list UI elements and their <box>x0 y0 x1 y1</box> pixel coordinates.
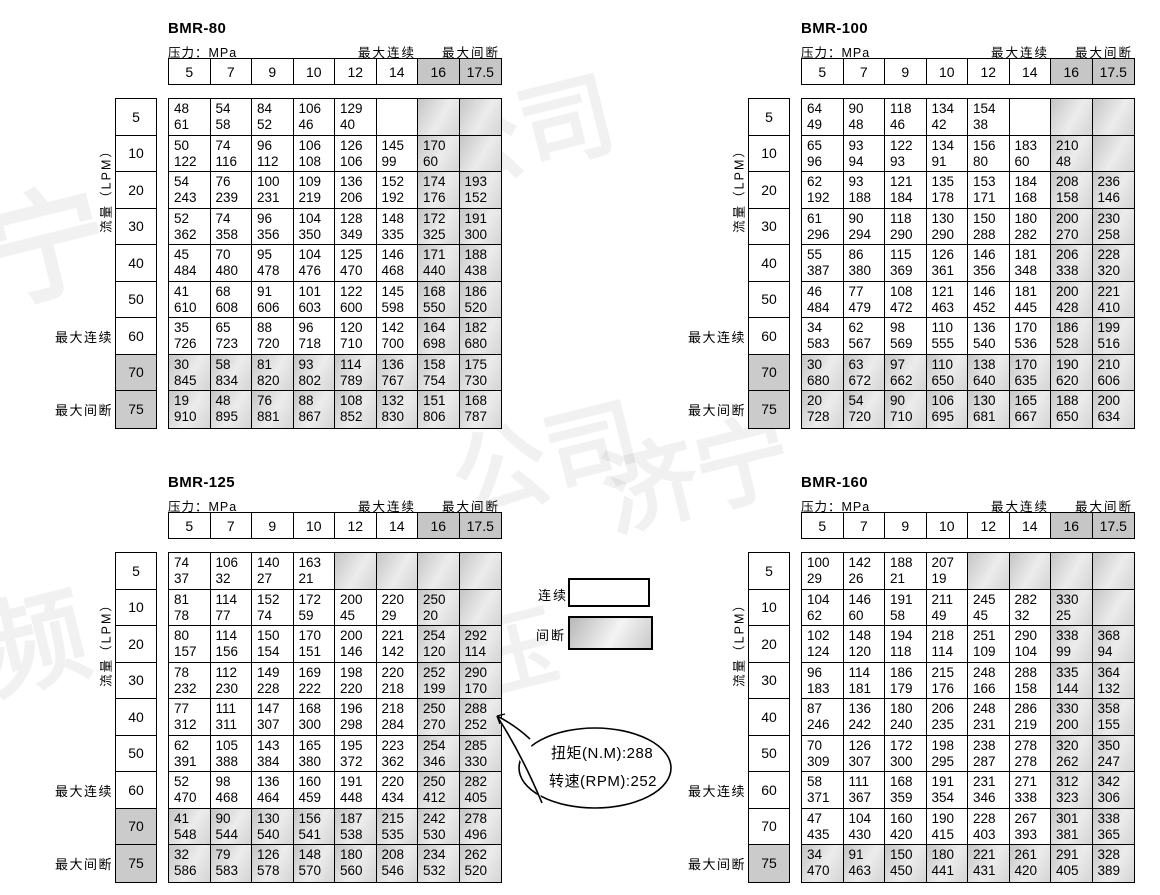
torque-speed-cell: 330200 <box>1051 699 1093 736</box>
torque-value: 126 <box>932 247 968 263</box>
flow-row-label: 50 <box>749 282 789 319</box>
torque-speed-cell: 104476 <box>294 245 336 282</box>
torque-value: 156 <box>299 811 335 827</box>
speed-value: 120 <box>423 644 459 660</box>
speed-value: 710 <box>890 409 926 425</box>
torque-value: 114 <box>216 628 252 644</box>
torque-value: 118 <box>890 211 926 227</box>
speed-value: 231 <box>257 190 293 206</box>
torque-value: 54 <box>216 101 252 117</box>
table-header-labels: 压力：MPa 最大连续 最大间断 <box>801 496 1133 511</box>
pressure-column-headers: 5791012141617.5 <box>168 512 502 539</box>
torque-value: 228 <box>973 811 1009 827</box>
speed-value: 728 <box>807 409 843 425</box>
torque-speed-cell: 58371 <box>802 772 844 809</box>
torque-value: 74 <box>174 555 210 571</box>
speed-value: 430 <box>849 827 885 843</box>
torque-speed-cell: 146452 <box>968 282 1010 319</box>
torque-value: 90 <box>890 393 926 409</box>
torque-value: 96 <box>257 138 293 154</box>
torque-value: 188 <box>1056 393 1092 409</box>
torque-value: 210 <box>1056 138 1092 154</box>
torque-value: 330 <box>1056 701 1092 717</box>
speed-value: 472 <box>890 300 926 316</box>
torque-speed-cell: 10462 <box>802 590 844 627</box>
torque-speed-cell: 96112 <box>252 136 294 173</box>
torque-value: 111 <box>849 774 885 790</box>
speed-value: 680 <box>465 336 502 352</box>
torque-speed-cell: 61296 <box>802 209 844 246</box>
torque-speed-cell: 24545 <box>968 590 1010 627</box>
speed-value: 231 <box>973 717 1009 733</box>
torque-speed-cell: 292114 <box>460 626 502 663</box>
speed-value: 309 <box>807 754 843 770</box>
speed-value: 306 <box>1098 790 1135 806</box>
speed-value: 468 <box>216 790 252 806</box>
speed-value: 528 <box>1056 336 1092 352</box>
torque-value: 335 <box>1056 665 1092 681</box>
torque-value: 91 <box>257 284 293 300</box>
torque-value: 180 <box>1015 211 1051 227</box>
torque-speed-cell: 35726 <box>169 318 211 355</box>
torque-speed-cell: 79583 <box>211 845 253 882</box>
torque-speed-cell: 15438 <box>968 99 1010 136</box>
speed-value: 405 <box>1056 863 1092 879</box>
torque-speed-cell: 95478 <box>252 245 294 282</box>
torque-value: 194 <box>890 628 926 644</box>
torque-value: 35 <box>174 320 210 336</box>
torque-speed-cell: 132830 <box>377 391 419 428</box>
speed-value: 158 <box>1015 681 1051 697</box>
speed-value: 830 <box>382 409 418 425</box>
torque-value: 81 <box>257 357 293 373</box>
torque-value: 32 <box>174 847 210 863</box>
speed-value: 560 <box>340 863 376 879</box>
speed-value: 548 <box>174 827 210 843</box>
speed-value: 586 <box>174 863 210 879</box>
speed-value: 371 <box>807 790 843 806</box>
speed-value: 91 <box>932 154 968 170</box>
speed-value: 21 <box>299 571 335 587</box>
speed-value: 80 <box>973 154 1009 170</box>
torque-speed-cell: 14226 <box>844 553 886 590</box>
flow-row-labels: 51020304050607075 <box>115 552 157 883</box>
torque-value: 81 <box>174 592 210 608</box>
flow-axis-label: 流量（LPM） <box>96 597 115 687</box>
table-title: BMR-100 <box>801 20 868 37</box>
speed-value: 789 <box>340 373 376 389</box>
table-title: BMR-160 <box>801 474 868 491</box>
torque-value: 90 <box>849 211 885 227</box>
torque-speed-cell: 10029 <box>802 553 844 590</box>
torque-value: 114 <box>216 592 252 608</box>
torque-value: 208 <box>1056 174 1092 190</box>
torque-value: 93 <box>849 174 885 190</box>
flow-row-label: 40 <box>116 699 156 736</box>
pressure-col-header: 7 <box>844 513 886 538</box>
torque-speed-cell: 102124 <box>802 626 844 663</box>
torque-value: 70 <box>807 738 843 754</box>
speed-value: 381 <box>1056 827 1092 843</box>
speed-value: 62 <box>807 608 843 624</box>
torque-value: 135 <box>932 174 968 190</box>
speed-value: 243 <box>174 190 210 206</box>
speed-value: 284 <box>382 717 418 733</box>
torque-value: 312 <box>1056 774 1092 790</box>
torque-value: 96 <box>299 320 335 336</box>
torque-speed-cell: 114156 <box>211 626 253 663</box>
torque-speed-cell: 196298 <box>335 699 377 736</box>
torque-speed-cell: 76239 <box>211 172 253 209</box>
speed-value: 323 <box>1056 790 1092 806</box>
speed-value: 294 <box>849 227 885 243</box>
speed-value: 200 <box>1056 717 1092 733</box>
torque-value: 186 <box>465 284 502 300</box>
torque-speed-cell: 28232 <box>1010 590 1052 627</box>
torque-value: 132 <box>382 393 418 409</box>
torque-speed-cell: 143384 <box>252 736 294 773</box>
speed-value: 142 <box>382 644 418 660</box>
torque-value: 198 <box>932 738 968 754</box>
flow-axis-label: 流量（LPM） <box>729 143 748 233</box>
torque-speed-cell: 34583 <box>802 318 844 355</box>
torque-speed-cell: 170536 <box>1010 318 1052 355</box>
flow-row-label: 10 <box>749 136 789 173</box>
speed-value: 349 <box>340 227 376 243</box>
pressure-col-header: 16 <box>1051 59 1093 84</box>
torque-speed-cell: 168787 <box>460 391 502 428</box>
callout-bubble <box>430 695 680 835</box>
empty-cell <box>1051 553 1093 590</box>
speed-value: 356 <box>973 263 1009 279</box>
speed-value: 881 <box>257 409 293 425</box>
torque-speed-cell: 110555 <box>927 318 969 355</box>
speed-value: 32 <box>1015 608 1051 624</box>
torque-speed-cell: 190620 <box>1051 355 1093 392</box>
speed-value: 546 <box>382 863 418 879</box>
torque-speed-cell: 14660 <box>844 590 886 627</box>
torque-speed-cell: 112230 <box>211 663 253 700</box>
torque-speed-cell: 62567 <box>844 318 886 355</box>
torque-value: 145 <box>382 138 418 154</box>
torque-speed-cell: 290170 <box>460 663 502 700</box>
torque-speed-cell: 291405 <box>1051 845 1093 882</box>
speed-value: 667 <box>1015 409 1051 425</box>
speed-value: 767 <box>382 373 418 389</box>
torque-value: 187 <box>340 811 376 827</box>
torque-value: 146 <box>973 247 1009 263</box>
speed-value: 220 <box>340 681 376 697</box>
speed-value: 46 <box>299 117 335 133</box>
torque-speed-cell: 180560 <box>335 845 377 882</box>
torque-value: 138 <box>973 357 1009 373</box>
flow-row-label: 5 <box>116 99 156 136</box>
speed-value: 672 <box>849 373 885 389</box>
speed-value: 415 <box>932 827 968 843</box>
speed-value: 320 <box>1098 263 1135 279</box>
torque-speed-cell: 104430 <box>844 809 886 846</box>
torque-speed-cell: 11477 <box>211 590 253 627</box>
speed-value: 350 <box>299 227 335 243</box>
torque-value: 148 <box>382 211 418 227</box>
speed-value: 895 <box>216 409 252 425</box>
torque-speed-cell: 252199 <box>418 663 460 700</box>
torque-value: 181 <box>1015 284 1051 300</box>
torque-speed-cell: 130290 <box>927 209 969 246</box>
torque-speed-cell: 312323 <box>1051 772 1093 809</box>
torque-value: 122 <box>890 138 926 154</box>
torque-speed-cell: 16321 <box>294 553 336 590</box>
torque-value: 156 <box>973 138 1009 154</box>
torque-speed-cell: 70309 <box>802 736 844 773</box>
speed-value: 59 <box>299 608 335 624</box>
speed-value: 60 <box>423 154 459 170</box>
pressure-col-header: 17.5 <box>460 59 502 84</box>
speed-value: 258 <box>1098 227 1135 243</box>
torque-speed-cell: 165667 <box>1010 391 1052 428</box>
speed-value: 154 <box>257 644 293 660</box>
pressure-col-header: 14 <box>377 513 419 538</box>
speed-value: 536 <box>1015 336 1051 352</box>
torque-speed-cell: 221431 <box>968 845 1010 882</box>
speed-value: 48 <box>1056 154 1092 170</box>
torque-speed-cell: 9048 <box>844 99 886 136</box>
torque-speed-cell: 88720 <box>252 318 294 355</box>
torque-value: 234 <box>423 847 459 863</box>
torque-speed-cell: 106108 <box>294 136 336 173</box>
torque-value: 130 <box>257 811 293 827</box>
legend-intermittent-label: 间断 <box>536 625 566 644</box>
torque-speed-cell: 96356 <box>252 209 294 246</box>
max-continuous-row-label: 最大连续 <box>55 781 113 800</box>
torque-speed-cell: 171440 <box>418 245 460 282</box>
torque-value: 96 <box>807 665 843 681</box>
empty-cell <box>460 99 502 136</box>
torque-value: 168 <box>299 701 335 717</box>
torque-value: 104 <box>849 811 885 827</box>
torque-speed-cell: 135178 <box>927 172 969 209</box>
torque-speed-cell: 58834 <box>211 355 253 392</box>
torque-value: 350 <box>1098 738 1135 754</box>
torque-speed-cell: 126578 <box>252 845 294 882</box>
max-intermittent-row-label: 最大间断 <box>688 400 746 419</box>
speed-value: 650 <box>932 373 968 389</box>
speed-value: 228 <box>257 681 293 697</box>
speed-value: 78 <box>174 608 210 624</box>
torque-speed-cell: 168550 <box>418 282 460 319</box>
flow-row-label: 75 <box>749 391 789 428</box>
torque-speed-cell: 14027 <box>252 553 294 590</box>
torque-speed-cell: 30680 <box>802 355 844 392</box>
torque-speed-cell: 21149 <box>927 590 969 627</box>
torque-speed-cell: 148120 <box>844 626 886 663</box>
torque-speed-cell: 98569 <box>885 318 927 355</box>
flow-row-label: 75 <box>116 845 156 882</box>
torque-value: 191 <box>890 592 926 608</box>
pressure-col-header: 17.5 <box>1093 59 1135 84</box>
speed-value: 359 <box>890 790 926 806</box>
torque-value: 30 <box>807 357 843 373</box>
speed-value: 834 <box>216 373 252 389</box>
torque-speed-cell: 164698 <box>418 318 460 355</box>
empty-cell <box>1051 99 1093 136</box>
max-continuous-row-label: 最大连续 <box>55 327 113 346</box>
torque-value: 181 <box>1015 247 1051 263</box>
torque-speed-cell: 93802 <box>294 355 336 392</box>
torque-value: 98 <box>216 774 252 790</box>
speed-value: 42 <box>932 117 968 133</box>
torque-value: 74 <box>216 138 252 154</box>
torque-value: 106 <box>216 555 252 571</box>
torque-speed-cell: 198295 <box>927 736 969 773</box>
torque-speed-cell: 172300 <box>885 736 927 773</box>
torque-value: 76 <box>216 174 252 190</box>
torque-value: 180 <box>890 701 926 717</box>
torque-value: 88 <box>299 393 335 409</box>
torque-value: 50 <box>174 138 210 154</box>
torque-speed-cell: 90294 <box>844 209 886 246</box>
table-header-labels: 压力：MPa 最大连续 最大间断 <box>168 496 500 511</box>
torque-speed-cell: 12293 <box>885 136 927 173</box>
speed-value: 132 <box>1098 681 1135 697</box>
torque-speed-cell: 122600 <box>335 282 377 319</box>
speed-value: 362 <box>382 754 418 770</box>
torque-speed-cell: 328389 <box>1093 845 1135 882</box>
flow-row-label: 30 <box>116 663 156 700</box>
speed-value: 25 <box>1056 608 1092 624</box>
torque-value: 330 <box>1056 592 1092 608</box>
torque-value: 221 <box>973 847 1009 863</box>
torque-value: 62 <box>174 738 210 754</box>
torque-speed-cell: 191354 <box>927 772 969 809</box>
torque-speed-cell: 169222 <box>294 663 336 700</box>
torque-value: 163 <box>299 555 335 571</box>
torque-value: 77 <box>849 284 885 300</box>
speed-value: 338 <box>1056 263 1092 279</box>
speed-value: 852 <box>340 409 376 425</box>
torque-speed-cell: 248231 <box>968 699 1010 736</box>
speed-value: 20 <box>423 608 459 624</box>
torque-speed-cell: 223362 <box>377 736 419 773</box>
torque-value: 86 <box>849 247 885 263</box>
torque-value: 146 <box>849 592 885 608</box>
torque-speed-cell: 104350 <box>294 209 336 246</box>
torque-value: 193 <box>465 174 502 190</box>
torque-value: 218 <box>932 628 968 644</box>
empty-cell <box>460 590 502 627</box>
flow-row-label: 20 <box>749 172 789 209</box>
torque-value: 78 <box>174 665 210 681</box>
flow-row-label: 60 <box>116 772 156 809</box>
torque-speed-cell: 148335 <box>377 209 419 246</box>
torque-speed-cell: 220434 <box>377 772 419 809</box>
pressure-col-header: 7 <box>844 59 886 84</box>
torque-value: 121 <box>890 174 926 190</box>
pressure-column-headers: 5791012141617.5 <box>801 58 1135 85</box>
speed-value: 94 <box>1098 644 1135 660</box>
torque-value: 118 <box>890 101 926 117</box>
torque-value: 172 <box>299 592 335 608</box>
torque-speed-cell: 193152 <box>460 172 502 209</box>
flow-row-label: 60 <box>749 772 789 809</box>
torque-value: 150 <box>890 847 926 863</box>
pressure-col-header: 12 <box>968 513 1010 538</box>
torque-speed-cell: 17259 <box>294 590 336 627</box>
torque-speed-cell: 90544 <box>211 809 253 846</box>
speed-value: 192 <box>382 190 418 206</box>
torque-value: 252 <box>423 665 459 681</box>
speed-value: 49 <box>932 608 968 624</box>
torque-value: 250 <box>423 592 459 608</box>
torque-value: 100 <box>807 555 843 571</box>
speed-value: 242 <box>849 717 885 733</box>
torque-value: 110 <box>932 320 968 336</box>
torque-speed-cell: 115369 <box>885 245 927 282</box>
speed-value: 112 <box>257 154 293 170</box>
pressure-col-header: 5 <box>169 59 211 84</box>
torque-speed-cell: 221142 <box>377 626 419 663</box>
speed-value: 606 <box>257 300 293 316</box>
torque-speed-cell: 136540 <box>968 318 1010 355</box>
torque-value: 199 <box>1098 320 1135 336</box>
torque-value: 151 <box>423 393 459 409</box>
speed-value: 583 <box>216 863 252 879</box>
speed-value: 388 <box>216 754 252 770</box>
speed-value: 380 <box>849 263 885 279</box>
torque-speed-cell: 262520 <box>460 845 502 882</box>
table-bmr-160: BMR-160 压力：MPa 最大连续 最大间断 5791012141617.5… <box>688 470 1140 892</box>
torque-value: 290 <box>1015 628 1051 644</box>
speed-value: 40 <box>340 117 376 133</box>
speed-value: 555 <box>932 336 968 352</box>
speed-value: 459 <box>299 790 335 806</box>
torque-speed-cell: 54243 <box>169 172 211 209</box>
torque-speed-cell: 191300 <box>460 209 502 246</box>
max-intermittent-row-label: 最大间断 <box>55 854 113 873</box>
speed-value: 282 <box>1015 227 1051 243</box>
torque-value: 76 <box>257 393 293 409</box>
flow-row-labels: 51020304050607075 <box>115 98 157 429</box>
torque-speed-cell: 12940 <box>335 99 377 136</box>
torque-speed-cell: 170151 <box>294 626 336 663</box>
speed-value: 384 <box>257 754 293 770</box>
torque-value: 46 <box>807 284 843 300</box>
pressure-col-header: 10 <box>927 513 969 538</box>
torque-speed-cell: 106695 <box>927 391 969 428</box>
speed-value: 567 <box>849 336 885 352</box>
torque-value: 171 <box>423 247 459 263</box>
torque-speed-cell: 198220 <box>335 663 377 700</box>
table-header-labels: 压力：MPa 最大连续 最大间断 <box>168 42 500 57</box>
torque-value: 70 <box>216 247 252 263</box>
flow-row-label: 40 <box>749 245 789 282</box>
torque-speed-cell: 130681 <box>968 391 1010 428</box>
torque-speed-cell: 126361 <box>927 245 969 282</box>
flow-row-label: 10 <box>116 590 156 627</box>
torque-value: 148 <box>299 847 335 863</box>
pressure-column-headers: 5791012141617.5 <box>801 512 1135 539</box>
flow-row-label: 10 <box>749 590 789 627</box>
speed-value: 307 <box>849 754 885 770</box>
torque-speed-grid: 6449904811846134421543865969394122931349… <box>801 98 1135 429</box>
flow-row-label: 60 <box>116 318 156 355</box>
torque-speed-cell: 111311 <box>211 699 253 736</box>
torque-value: 215 <box>382 811 418 827</box>
torque-speed-cell: 108472 <box>885 282 927 319</box>
torque-value: 108 <box>340 393 376 409</box>
torque-value: 84 <box>257 101 293 117</box>
speed-value: 720 <box>849 409 885 425</box>
